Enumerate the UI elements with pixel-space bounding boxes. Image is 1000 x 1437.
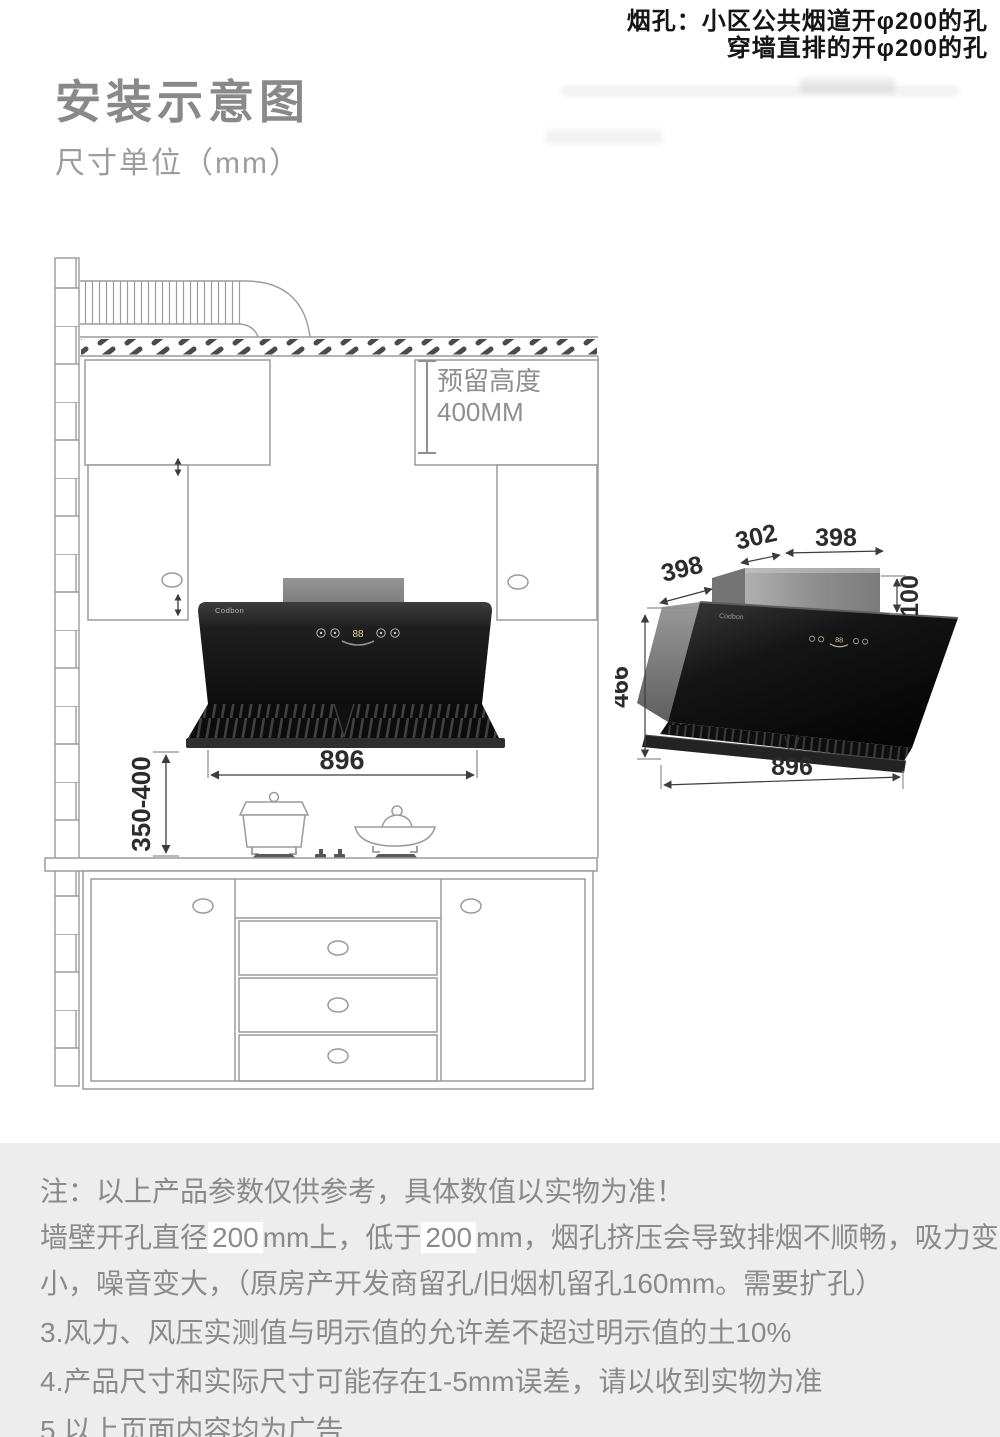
hood-display: 88 [835, 637, 843, 644]
duct-width-value: 398 [815, 524, 857, 552]
hood-glass-panel [198, 602, 492, 704]
hood-brand-logo: Codbon [719, 613, 744, 621]
dim-install-height: 350-400 [126, 752, 179, 856]
notes-panel: 注：以上产品参数仅供参考，具体数值以实物为准！ 墙壁开孔直径200mm上，低于2… [0, 1143, 1000, 1437]
page-title: 安装示意图 [55, 66, 310, 132]
note-line4: 3.风力、风压实测值与明示值的允许差不超过明示值的土10% [40, 1310, 970, 1356]
upper-cabinet-left [85, 360, 270, 465]
page: 烟孔：小区公共烟道开φ200的孔 穿墙直排的开φ200的孔 安装示意图 尺寸单位… [0, 0, 1000, 1437]
range-hood-front: Codbon 88 [186, 578, 505, 748]
top-depth-value: 398 [658, 551, 705, 588]
brick-wall [55, 258, 79, 1086]
body-width-value: 896 [771, 753, 813, 781]
body-height-value: 466 [615, 666, 634, 708]
watermark-smudge [560, 86, 960, 96]
hood-body-3d: Codbon 88 [637, 602, 958, 773]
hood-brand-logo: Codbon [215, 606, 244, 615]
reserved-height-label-line2: 400MM [437, 397, 524, 427]
dim-duct-depth: 302 [733, 519, 780, 563]
hood-display: 88 [352, 629, 364, 640]
hood-glass-panel [668, 602, 958, 748]
countertop [45, 858, 597, 871]
product-dimension-drawing: Codbon 88 398 302 398 [615, 515, 1000, 800]
side-cabinet-right [497, 465, 597, 620]
note-line6: 5.以上页面内容均为广告 [40, 1408, 970, 1437]
install-height-value: 350-400 [126, 756, 156, 851]
duct-depth-value: 302 [733, 519, 780, 556]
pot [240, 793, 308, 862]
watermark-smudge [800, 78, 895, 93]
exhaust-duct [80, 281, 310, 337]
hole-size-value: 200 [421, 1222, 476, 1253]
kitchen-installation-drawing: 预留高度 400MM Codbon 88 [40, 250, 610, 1100]
duct-height-value: 100 [896, 575, 924, 617]
reserved-height-label-line1: 预留高度 [437, 366, 541, 396]
note-line2: 墙壁开孔直径200mm上，低于200mm，烟孔挤压会导致排烟不顺畅，吸力变 [40, 1215, 970, 1261]
duct-hole-note: 烟孔：小区公共烟道开φ200的孔 穿墙直排的开φ200的孔 [627, 8, 988, 62]
stove [240, 793, 435, 862]
dim-duct-height: 100 [881, 575, 924, 617]
dim-duct-width: 398 [786, 524, 883, 553]
watermark-smudge [545, 130, 663, 144]
hood-width-value: 896 [319, 745, 364, 775]
base-cabinet [45, 858, 597, 1089]
note-line3: 小，噪音变大，（原房产开发商留孔/旧烟机留孔160mm。需要扩孔） [40, 1261, 970, 1307]
note-line1: 注：以上产品参数仅供参考，具体数值以实物为准！ [40, 1169, 970, 1215]
wok [355, 806, 435, 861]
hole-size-value: 200 [208, 1222, 263, 1253]
side-cabinet-left [88, 465, 188, 620]
duct-hole-note-line2: 穿墙直排的开φ200的孔 [627, 35, 988, 62]
dim-top-depth: 398 [658, 551, 712, 603]
unit-subtitle: 尺寸单位（mm） [55, 138, 301, 182]
duct-hole-note-line1: 烟孔：小区公共烟道开φ200的孔 [627, 8, 988, 35]
note-line5: 4.产品尺寸和实际尺寸可能存在1-5mm误差，请以收到实物为准 [40, 1359, 970, 1405]
dim-hood-width: 896 [208, 745, 477, 778]
